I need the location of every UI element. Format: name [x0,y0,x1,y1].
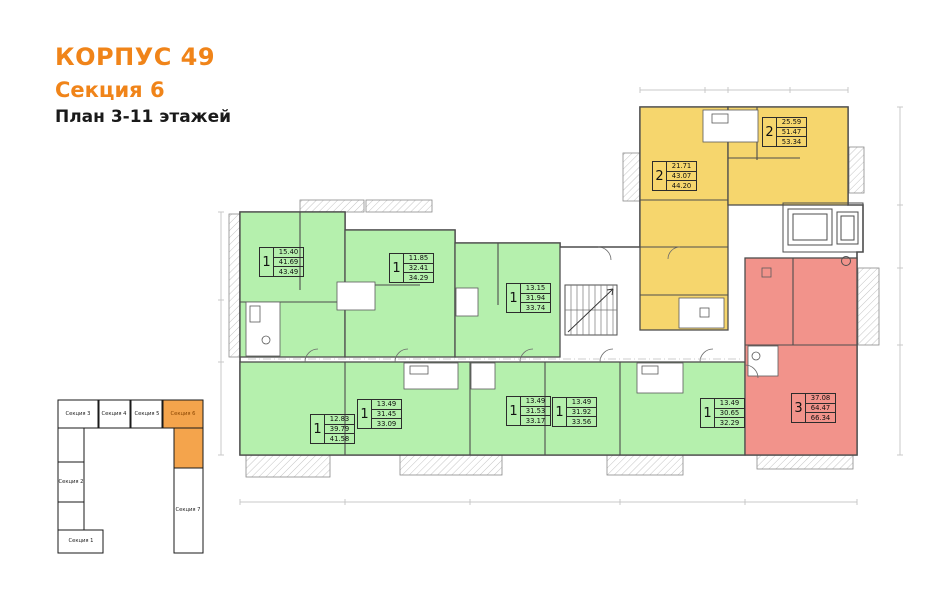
minimap-label-section-7: Секция 7 [176,507,201,513]
minimap-connector [58,428,84,462]
minimap-label-section-1: Секция 1 [69,538,94,544]
building-minimap [0,0,941,600]
minimap-connector [58,502,84,530]
minimap-label-section-2: Секция 2 [59,479,84,485]
floor-plan-page: КОРПУС 49 Секция 6 План 3-11 этажей [0,0,941,600]
minimap-label-section-4: Секция 4 [102,411,127,417]
minimap-label-section-6: Секция 6 [171,411,196,417]
minimap-label-section-3: Секция 3 [66,411,91,417]
minimap-label-section-5: Секция 5 [135,411,160,417]
minimap-section-6-wing [174,428,203,468]
